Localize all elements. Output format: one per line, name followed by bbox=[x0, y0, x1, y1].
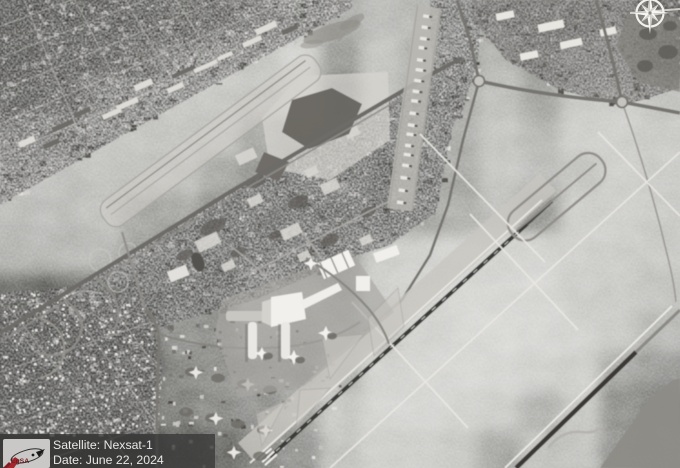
svg-text:EgSA: EgSA bbox=[11, 458, 29, 465]
